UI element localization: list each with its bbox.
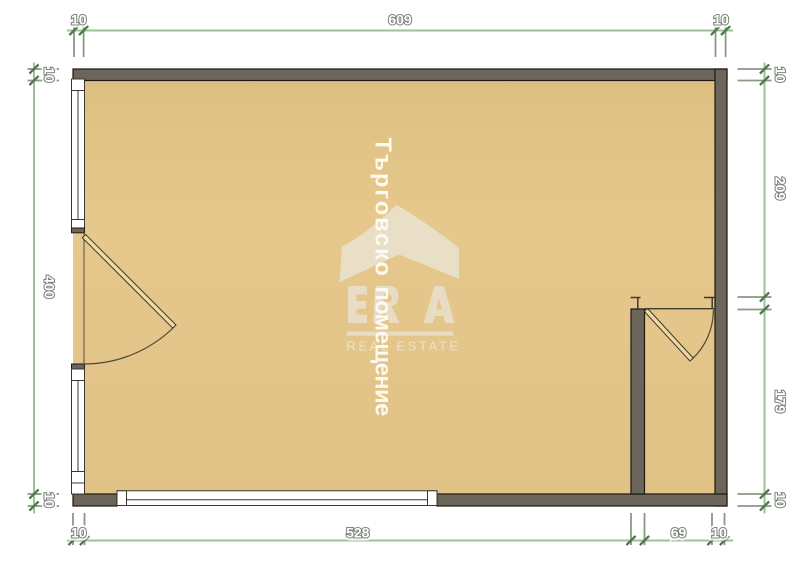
svg-text:10: 10 — [42, 67, 58, 83]
svg-text:209: 209 — [773, 177, 789, 201]
svg-text:10: 10 — [42, 492, 58, 508]
svg-text:400: 400 — [42, 275, 58, 299]
svg-text:REAL ESTATE: REAL ESTATE — [346, 339, 460, 354]
svg-text:69: 69 — [671, 525, 687, 541]
svg-text:10: 10 — [713, 12, 729, 28]
svg-text:10: 10 — [711, 525, 727, 541]
svg-text:528: 528 — [346, 525, 370, 541]
svg-text:10: 10 — [773, 492, 789, 508]
svg-text:Търговско помещение: Търговско помещение — [371, 138, 397, 417]
svg-text:609: 609 — [388, 12, 412, 28]
svg-text:179: 179 — [773, 390, 789, 414]
svg-text:10: 10 — [71, 12, 87, 28]
svg-text:10: 10 — [71, 525, 87, 541]
svg-text:10: 10 — [773, 67, 789, 83]
